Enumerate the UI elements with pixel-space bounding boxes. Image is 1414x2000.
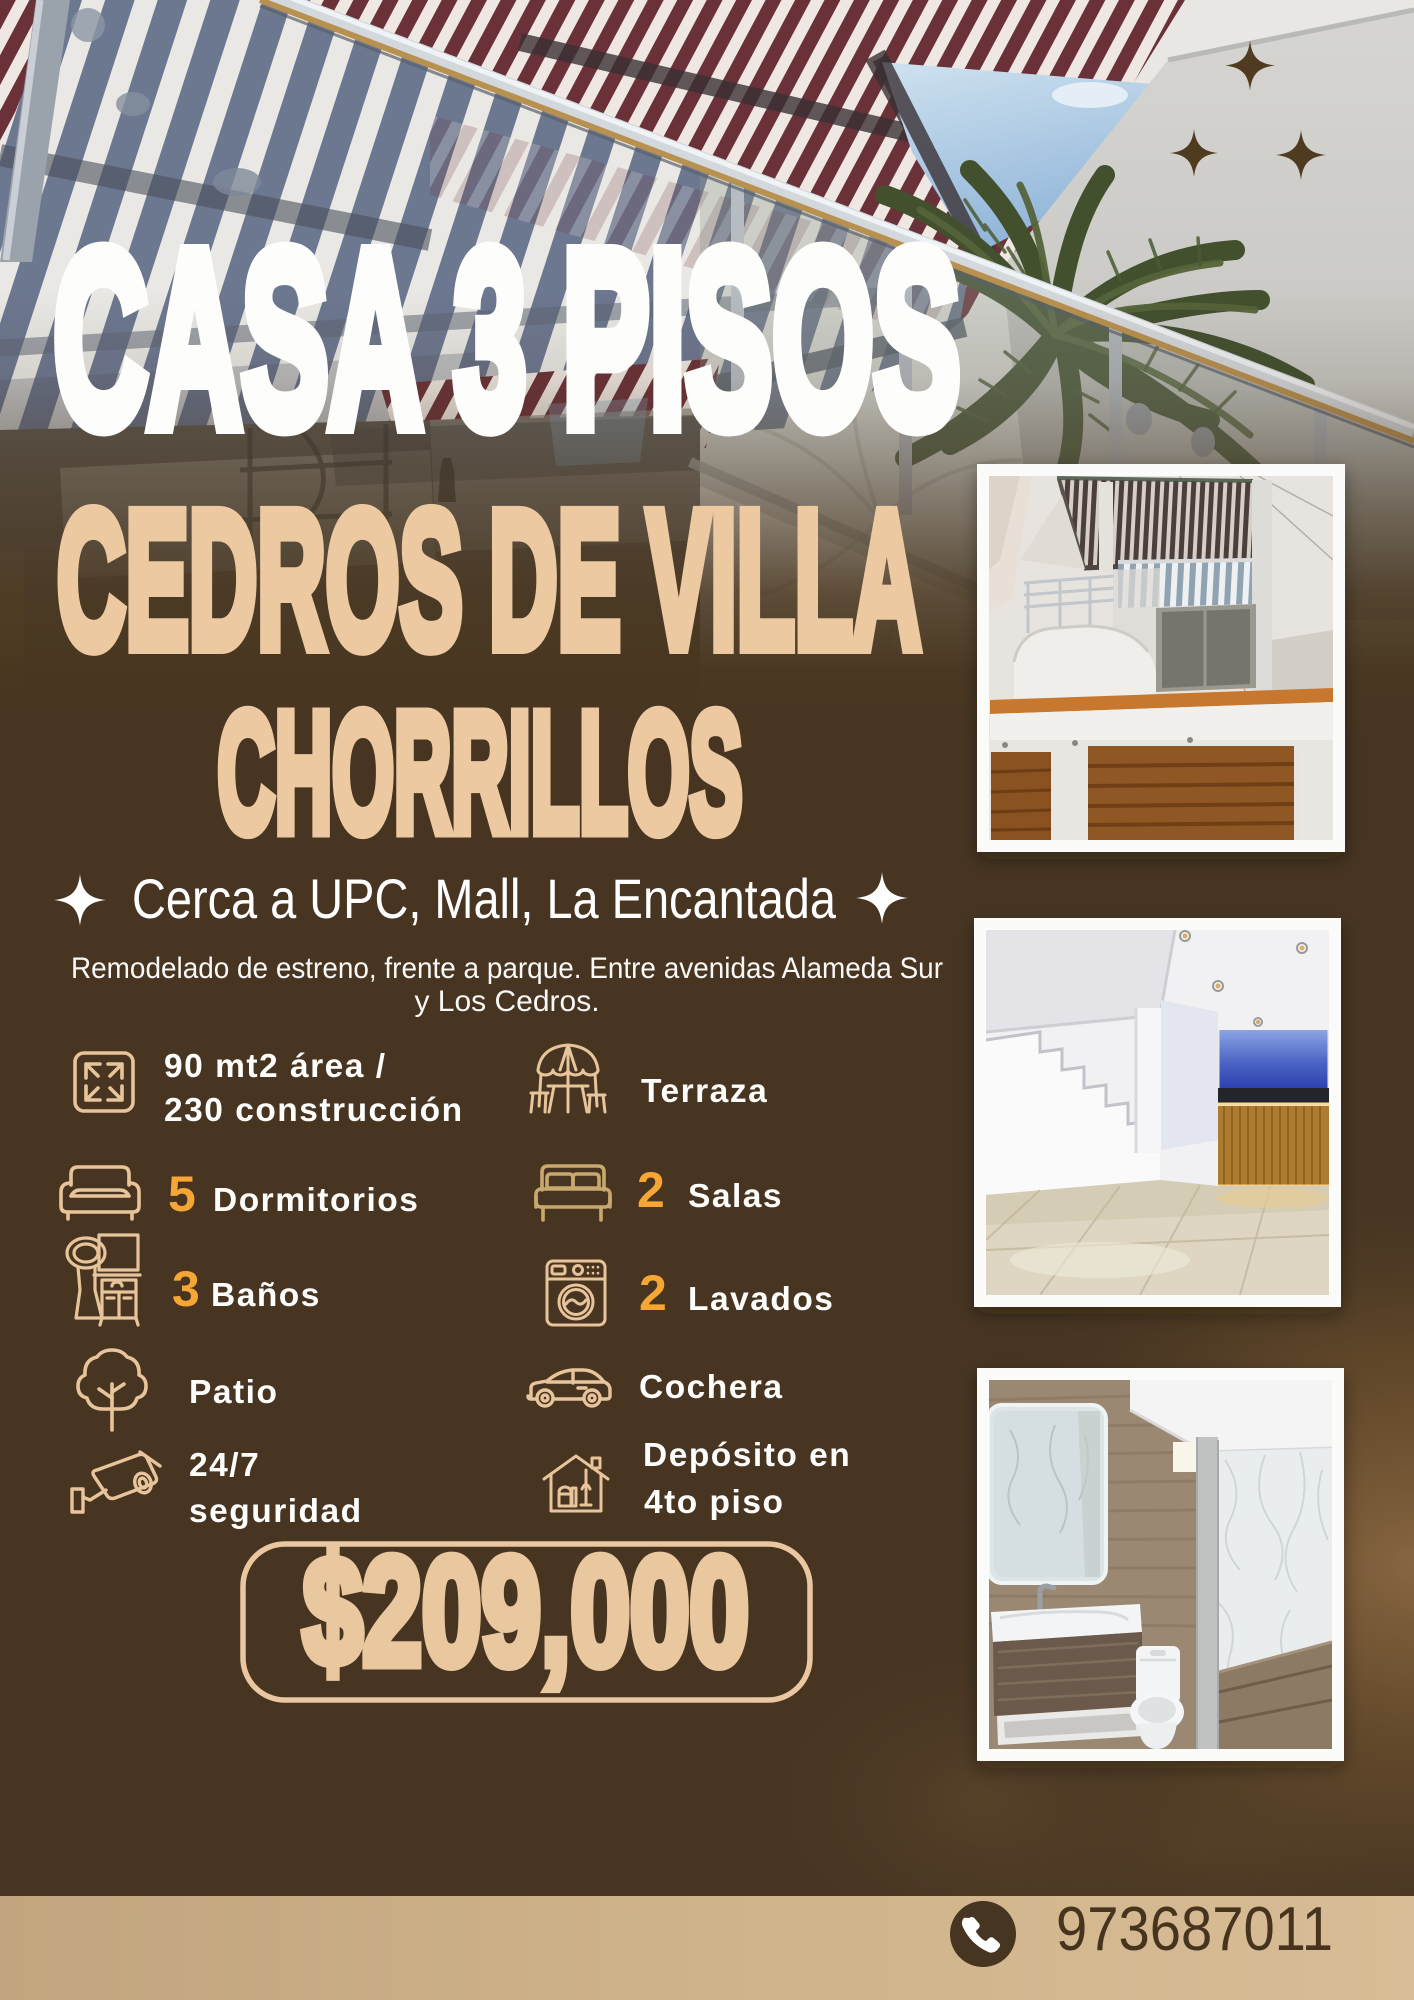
svg-text:230 construcción: 230 construcción (164, 1092, 464, 1129)
svg-text:2: 2 (639, 1265, 667, 1321)
svg-text:Remodelado de estreno, frente: Remodelado de estreno, frente a parque. … (71, 952, 943, 985)
svg-text:CEDROS DE VILLA: CEDROS DE VILLA (57, 471, 921, 689)
svg-text:4to piso: 4to piso (644, 1484, 784, 1521)
svg-text:CHORRILLOS: CHORRILLOS (218, 678, 743, 868)
svg-text:Baños: Baños (211, 1277, 321, 1314)
svg-text:3: 3 (172, 1261, 200, 1317)
svg-text:Depósito en: Depósito en (643, 1437, 851, 1474)
svg-text:Terraza: Terraza (641, 1073, 768, 1110)
svg-text:seguridad: seguridad (189, 1493, 363, 1530)
svg-text:24/7: 24/7 (189, 1447, 260, 1484)
svg-text:Dormitorios: Dormitorios (213, 1182, 419, 1219)
svg-text:Salas: Salas (688, 1178, 783, 1215)
svg-text:y Los Cedros.: y Los Cedros. (414, 985, 599, 1018)
svg-text:2: 2 (637, 1162, 665, 1218)
svg-text:Lavados: Lavados (688, 1281, 834, 1318)
svg-text:90 mt2 área /: 90 mt2 área / (164, 1048, 387, 1085)
svg-text:973687011: 973687011 (1056, 1895, 1333, 1964)
svg-text:Patio: Patio (189, 1374, 278, 1411)
svg-text:CASA 3 PISOS: CASA 3 PISOS (54, 199, 961, 478)
svg-text:5: 5 (168, 1166, 196, 1222)
svg-text:$209,000: $209,000 (303, 1526, 749, 1697)
svg-text:Cochera: Cochera (639, 1369, 784, 1406)
svg-text:Cerca a UPC, Mall, La Encantad: Cerca a UPC, Mall, La Encantada (132, 868, 836, 930)
